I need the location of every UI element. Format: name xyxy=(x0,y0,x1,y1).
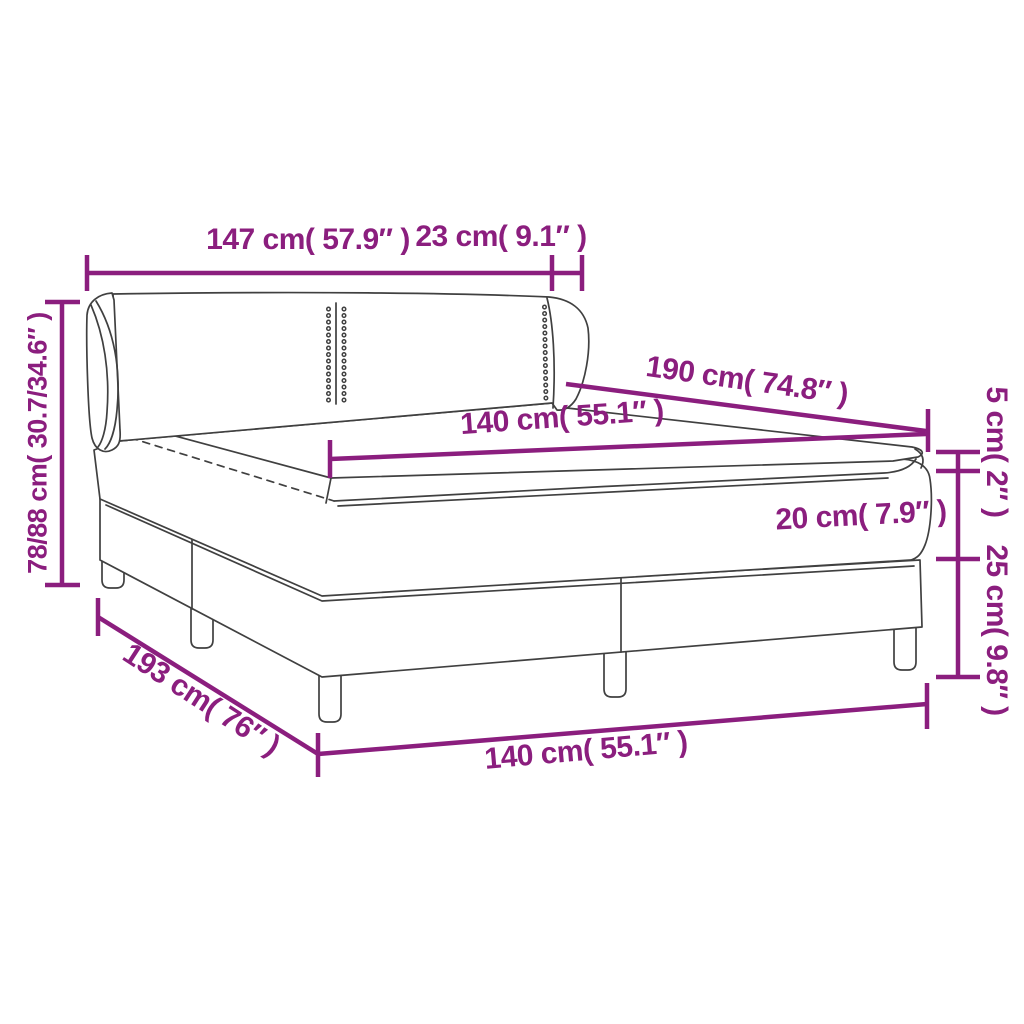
dim-label-wing-depth: 23 cm( 9.1″ ) xyxy=(415,222,586,252)
dim-label-base-height: 25 cm( 9.8″ ) xyxy=(981,544,1011,715)
dim-label-total-height: 78/88 cm( 30.7/34.6″ ) xyxy=(25,312,52,574)
dim-label-headboard-width: 147 cm( 57.9″ ) xyxy=(206,225,410,255)
dim-headboard-width-line xyxy=(87,255,582,291)
dimension-diagram: 147 cm( 57.9″ ) 23 cm( 9.1″ ) 78/88 cm( … xyxy=(0,0,1024,1024)
dim-right-heights-line xyxy=(936,452,980,677)
dim-label-topper-height: 5 cm( 2″ ) xyxy=(981,386,1011,517)
